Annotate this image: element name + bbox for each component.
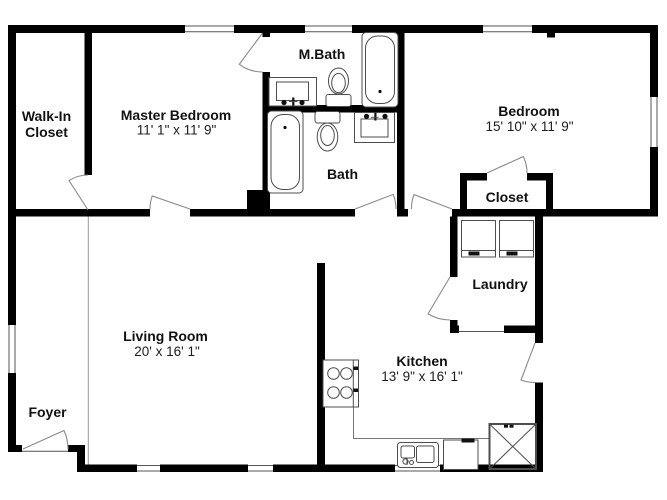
kitchen-dishwasher-icon [444,439,479,470]
room-dims-living-room: 20' x 16' 1" [134,344,200,359]
room-dims-master-bedroom: 11' 1" x 11' 9" [137,123,217,138]
laundry-door-arc [428,277,450,320]
laundry-washer-icon [462,221,496,258]
bath-bathtub-icon [268,111,304,193]
m-bath-toilet-icon [326,68,351,107]
walk-in-closet-door-arc [69,175,88,210]
kitchen-counter-line [354,407,490,439]
bath-door-arc [355,194,396,209]
room-label-bath: Bath [327,166,358,182]
room-label-closet: Closet [486,189,529,205]
floorplan-svg: Walk-In Closet Master Bedroom 11' 1" x 1… [0,0,667,500]
foyer-entry-door-arc [23,431,68,450]
room-label-bedroom: Bedroom [498,103,559,119]
m-bath-bathtub-icon [362,33,398,108]
room-dims-kitchen: 13' 9" x 16' 1" [381,369,463,384]
room-label-foyer: Foyer [28,404,67,420]
room-label-m-bath: M.Bath [299,46,346,62]
room-label-laundry: Laundry [472,276,527,292]
kitchen-refrigerator-icon [490,424,537,469]
bath-toilet-icon [315,112,340,152]
m-bath-door-arc [239,33,262,72]
kitchen-sink-icon [398,443,439,468]
room-dims-bedroom: 15' 10" x 11' 9" [485,119,573,134]
floor-plan: Walk-In Closet Master Bedroom 11' 1" x 1… [0,0,667,500]
room-label-kitchen: Kitchen [396,353,447,369]
room-label-walk-in-closet-line1: Walk-In [22,108,71,124]
room-label-walk-in-closet-line2: Closet [25,124,68,140]
bath-vanity-sink-icon [355,113,395,143]
bedroom-door-arc [411,195,452,209]
bedroom-closet-door-arc [487,157,527,174]
kitchen-side-door-arc [521,343,535,383]
room-label-master-bedroom: Master Bedroom [121,107,231,123]
room-label-living-room: Living Room [123,328,208,344]
laundry-dryer-icon [500,221,534,258]
master-bedroom-door-arc [150,196,190,209]
kitchen-stove-icon [323,360,359,407]
m-bath-vanity-sink-icon [269,78,317,107]
